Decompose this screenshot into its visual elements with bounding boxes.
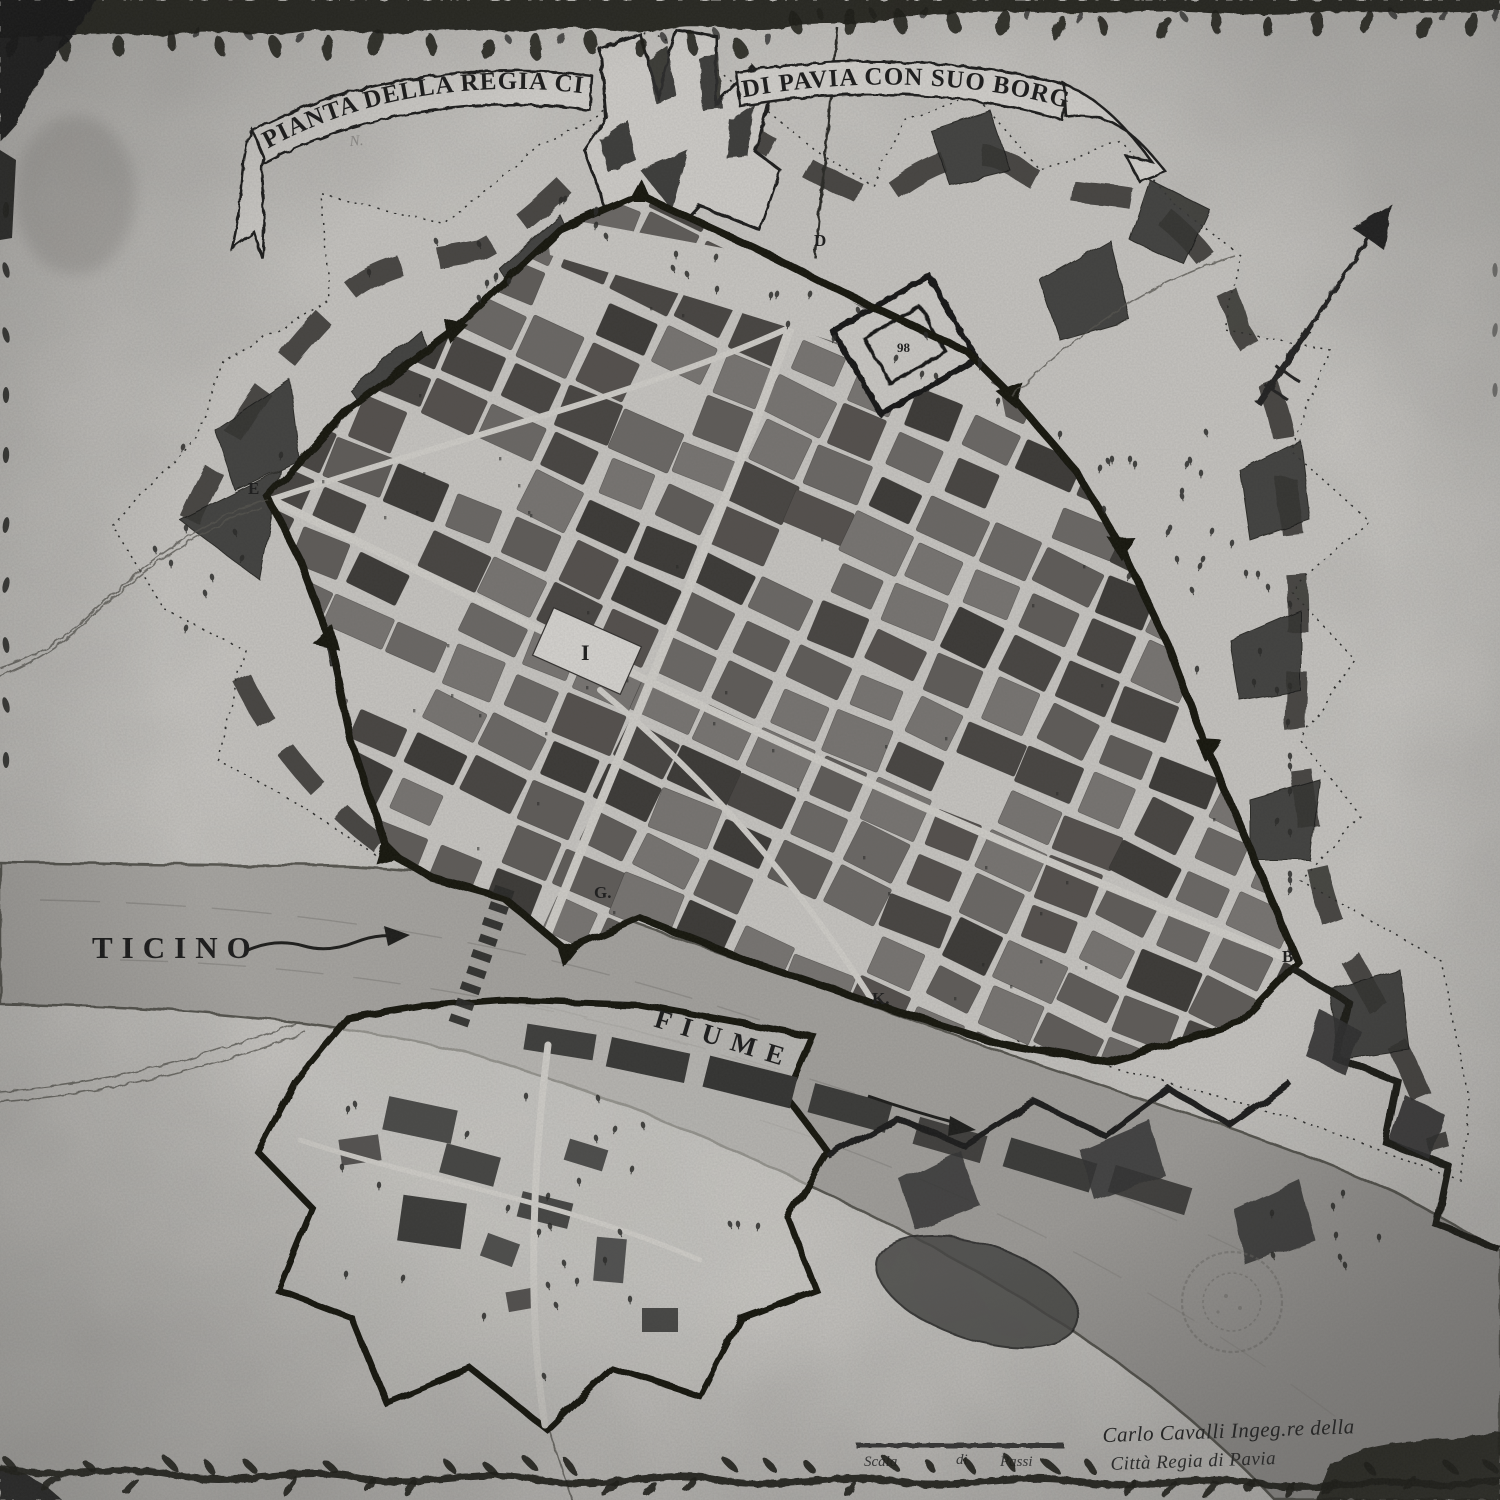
antique-map-of-pavia: I 98 E D G. K. B <box>0 0 1500 1500</box>
map-canvas: I 98 E D G. K. B <box>0 0 1500 1500</box>
film-grain <box>0 0 1500 1500</box>
